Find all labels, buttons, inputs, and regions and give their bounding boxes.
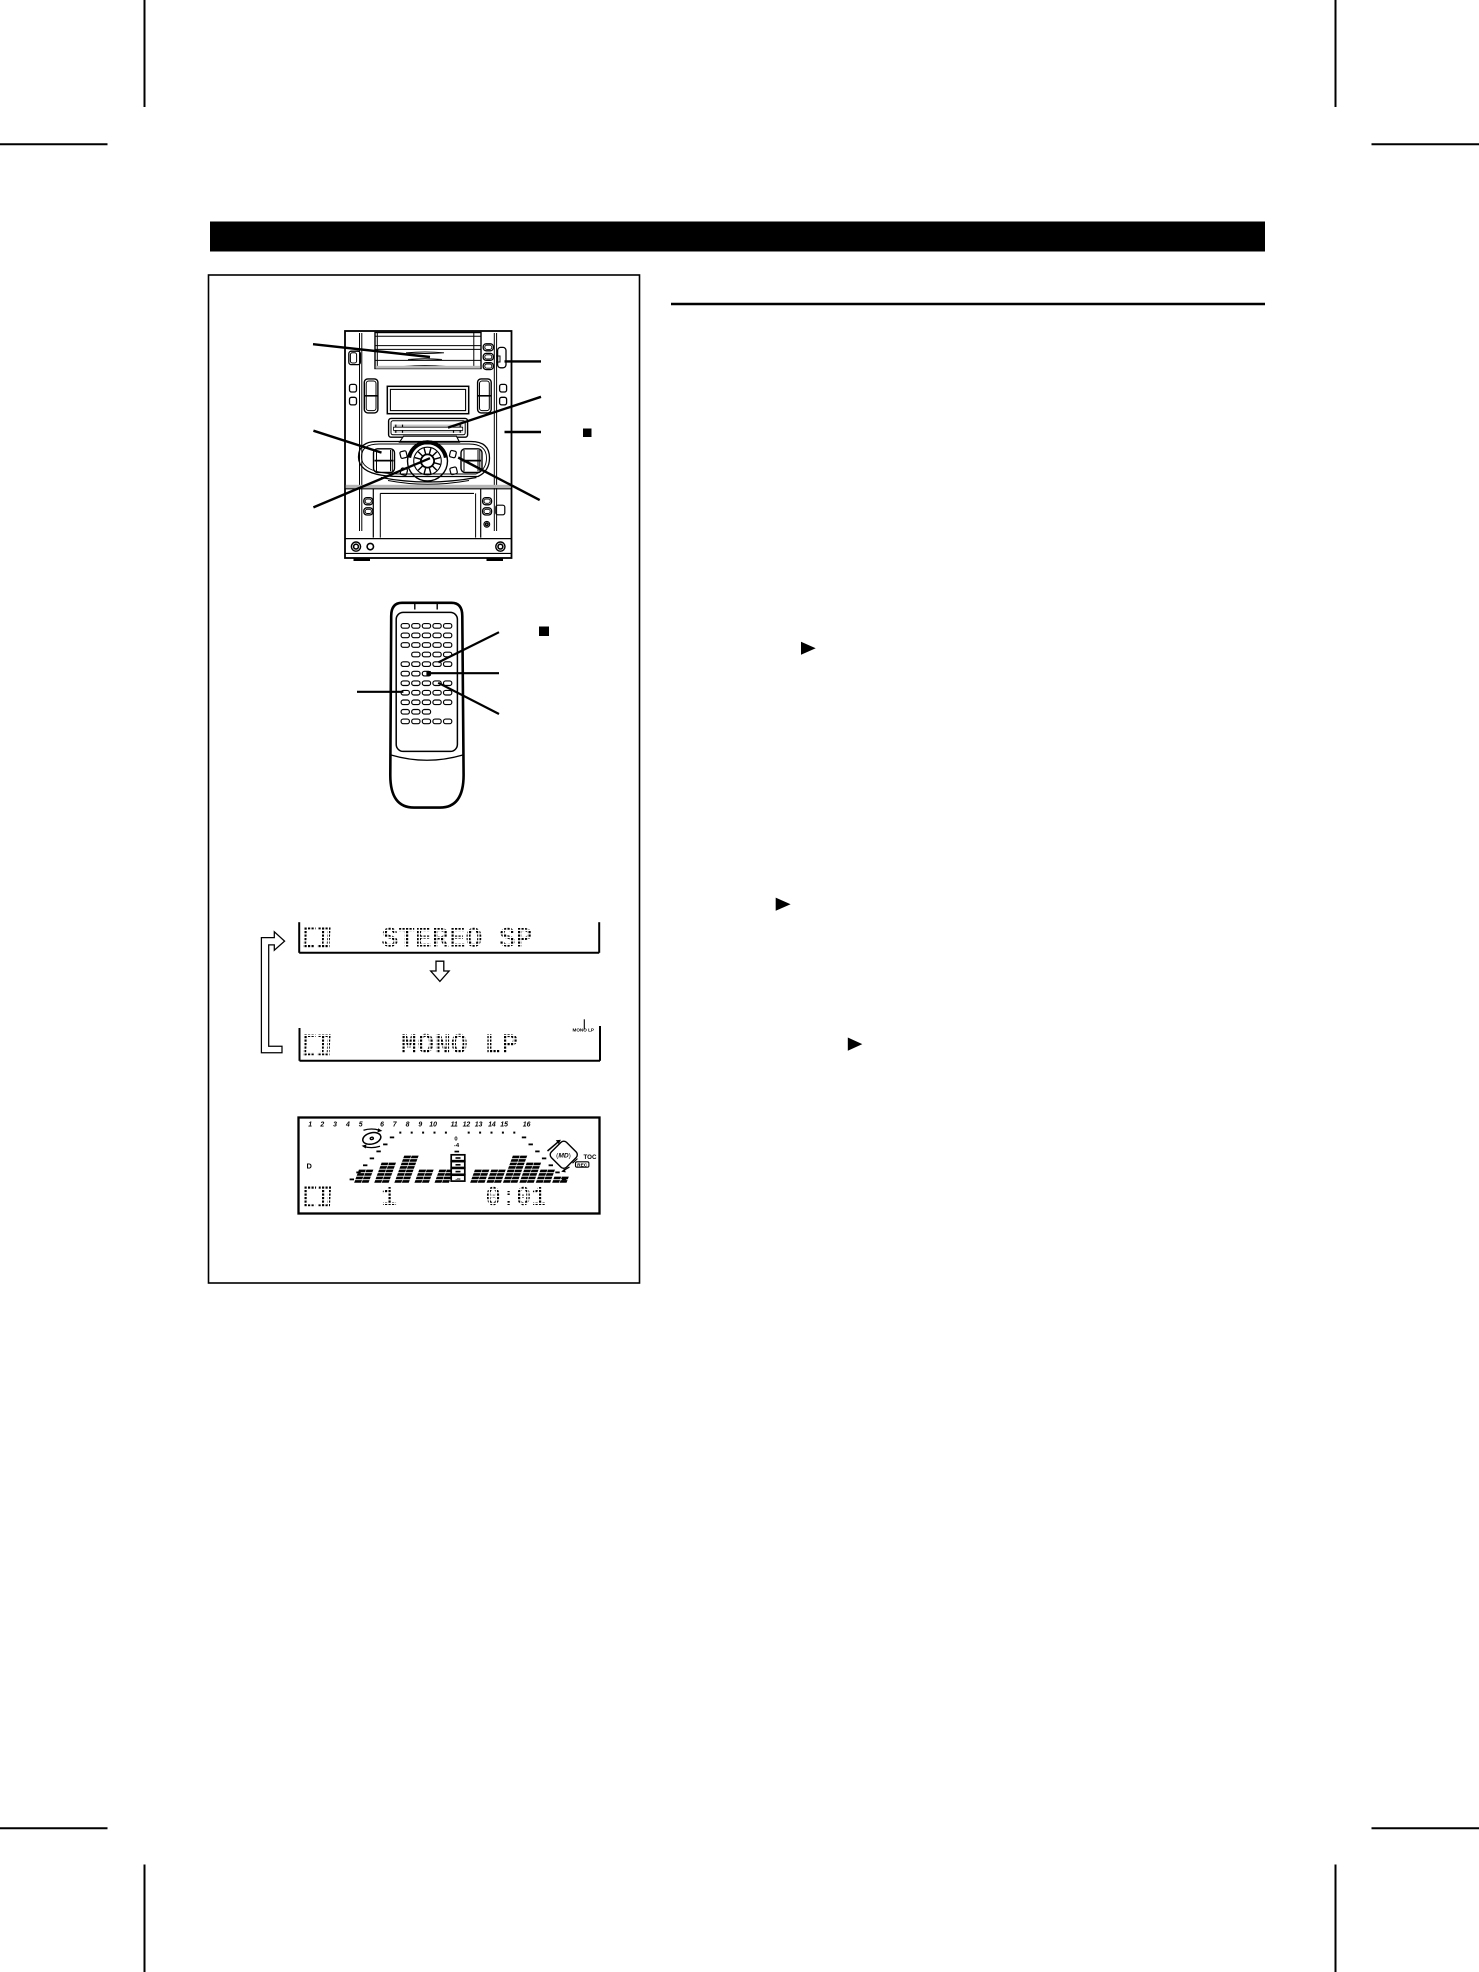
svg-text:16: 16 xyxy=(523,1122,531,1129)
svg-text:(MD): (MD) xyxy=(556,1152,571,1159)
svg-text:MONO LP: MONO LP xyxy=(401,1030,519,1061)
svg-text:D: D xyxy=(307,1162,313,1171)
svg-text:15: 15 xyxy=(500,1122,508,1129)
svg-text:2: 2 xyxy=(319,1122,324,1129)
svg-text:11: 11 xyxy=(451,1122,458,1129)
svg-text:0: 0 xyxy=(454,1136,457,1142)
svg-text:14: 14 xyxy=(488,1122,496,1129)
svg-text:3: 3 xyxy=(333,1122,337,1129)
svg-text:6: 6 xyxy=(380,1122,384,1129)
svg-text:1: 1 xyxy=(308,1122,312,1129)
svg-text:-∞: -∞ xyxy=(455,1177,461,1183)
svg-text:-4: -4 xyxy=(454,1143,460,1149)
svg-text:REC: REC xyxy=(577,1162,588,1168)
svg-text:8: 8 xyxy=(406,1122,410,1129)
svg-text:MONO LP: MONO LP xyxy=(573,1028,594,1033)
svg-text:13: 13 xyxy=(475,1122,483,1129)
svg-text:12: 12 xyxy=(463,1122,471,1129)
svg-text:0:01: 0:01 xyxy=(486,1184,547,1214)
svg-text:TOC: TOC xyxy=(584,1154,597,1161)
svg-text:9: 9 xyxy=(418,1122,422,1129)
svg-text:4: 4 xyxy=(345,1122,350,1129)
svg-text:1: 1 xyxy=(381,1184,397,1214)
svg-text:10: 10 xyxy=(429,1122,437,1129)
svg-text:5: 5 xyxy=(359,1122,363,1129)
svg-text:STEREO SP: STEREO SP xyxy=(382,925,533,956)
